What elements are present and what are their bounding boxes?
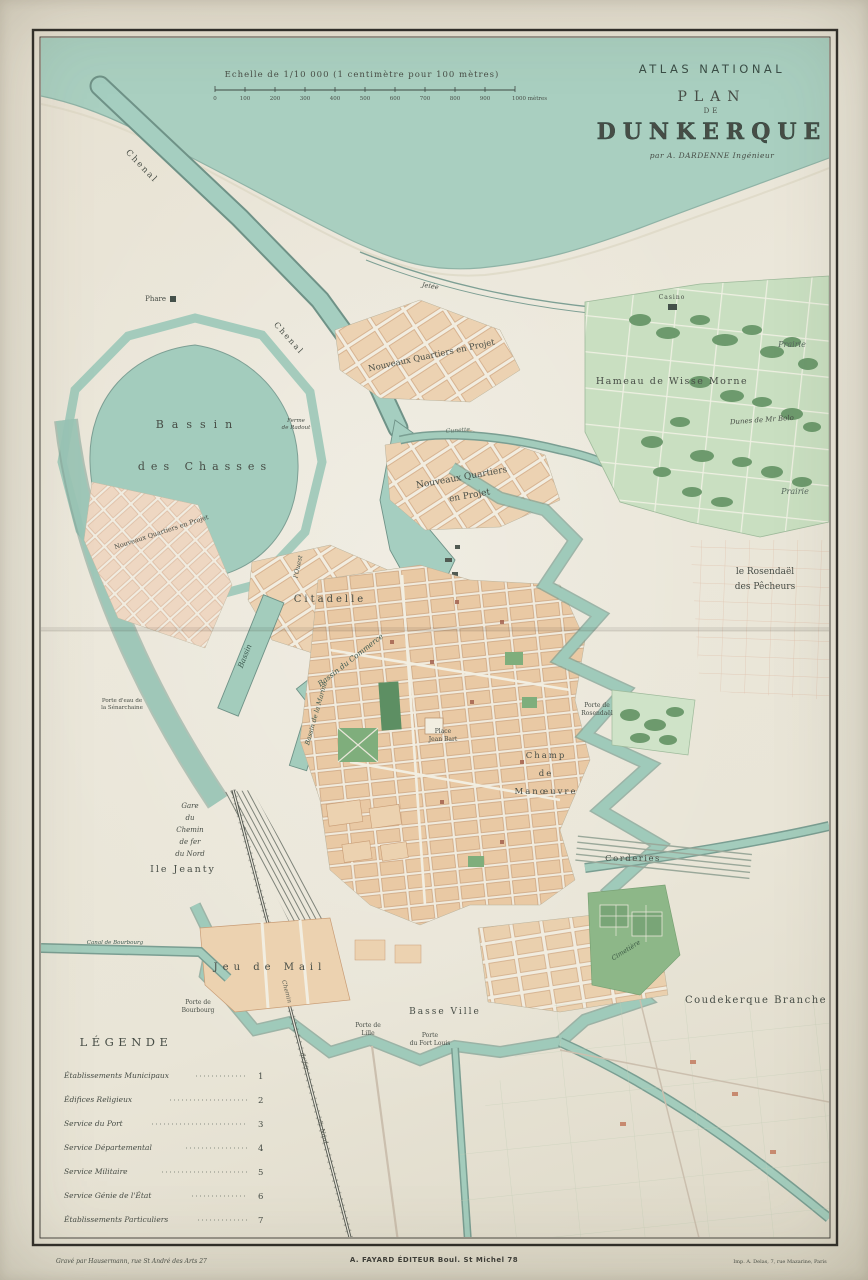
label-prairie-2: Prairie <box>780 487 809 496</box>
label-gare-3: Chemin <box>176 826 204 834</box>
city-title: DUNKERQUE <box>597 119 828 145</box>
label-rail-3: du Nord <box>316 1119 329 1145</box>
label-canal-bourbourg: Canal de Bourbourg <box>87 940 144 946</box>
imprint-right: Imp. A. Delas, 7, rue Mazarine, Paris <box>733 1259 827 1265</box>
label-bassin-chasses-2: des Chasses <box>138 460 272 473</box>
label-gare-5: du Nord <box>175 850 205 858</box>
svg-text:600: 600 <box>390 96 401 102</box>
label-rosendael-2: des Pêcheurs <box>735 581 796 592</box>
imprint-left: Gravé par Hausermann, rue St André des A… <box>56 1258 207 1265</box>
label-chenal-a: Chenal <box>123 148 160 185</box>
legend: LÉGENDE Établissements Municipaux Édific… <box>63 1035 263 1226</box>
legend-item-label: Service Départemental <box>64 1143 152 1152</box>
label-bassin-chasses-1: Bassin <box>156 418 241 431</box>
svg-text:800: 800 <box>450 96 461 102</box>
svg-text:300: 300 <box>300 96 311 102</box>
svg-text:0: 0 <box>213 96 217 102</box>
sw-small-blocks <box>355 940 421 963</box>
svg-text:700: 700 <box>420 96 431 102</box>
road-lille <box>372 1046 398 1242</box>
lighthouse <box>170 296 176 302</box>
dunes-park <box>585 276 829 537</box>
label-phare: Phare <box>145 295 166 303</box>
svg-text:400: 400 <box>330 96 341 102</box>
label-champ-3: Manœuvre <box>514 787 577 797</box>
label-rail-2: de fer <box>299 1052 311 1072</box>
legend-item-label: Édifices Religieux <box>63 1095 133 1104</box>
label-basse-ville: Basse Ville <box>409 1007 481 1017</box>
svg-text:200: 200 <box>270 96 281 102</box>
legend-item-label: Établissements Municipaux <box>63 1071 170 1080</box>
legend-item-label: Service du Port <box>64 1119 124 1128</box>
legend-item-num: 7 <box>258 1216 263 1226</box>
label-rosendael-1: le Rosendaël <box>736 567 794 577</box>
label-place-2: Jean Bart <box>428 736 458 743</box>
rosendael-grid <box>690 540 829 700</box>
label-porte-ros-1: Porte de <box>584 702 610 709</box>
legend-item-num: 2 <box>258 1096 263 1106</box>
de-word: DE <box>704 107 721 115</box>
legend-item-label: Service Génie de l'État <box>64 1191 152 1200</box>
label-citadelle: Citadelle <box>294 594 366 605</box>
legend-title: LÉGENDE <box>80 1035 173 1049</box>
legend-item-label: Établissements Particuliers <box>63 1215 168 1224</box>
svg-text:500: 500 <box>360 96 371 102</box>
scale-caption: Echelle de 1/10 000 (1 centimètre pour 1… <box>225 69 500 80</box>
label-porte-fl-2: du Fort Louis <box>410 1040 451 1047</box>
label-porte-bourbourg-1: Porte de <box>185 999 211 1006</box>
label-porte-fl-1: Porte <box>422 1032 439 1039</box>
legend-item-num: 5 <box>258 1168 263 1178</box>
label-place-1: Place <box>435 728 452 735</box>
label-gare-1: Gare <box>181 802 198 810</box>
label-porte-lille-2: Lille <box>361 1030 375 1037</box>
legend-item-label: Service Militaire <box>64 1167 128 1176</box>
svg-text:900: 900 <box>480 96 491 102</box>
svg-text:1000 mètres: 1000 mètres <box>512 95 547 102</box>
label-prairie-1: Prairie <box>777 340 806 349</box>
label-champ-1: Champ <box>526 751 567 761</box>
label-champ-2: de <box>539 769 553 779</box>
map-canvas: Echelle de 1/10 000 (1 centimètre pour 1… <box>0 0 868 1280</box>
legend-item-num: 4 <box>258 1144 263 1154</box>
label-coudekerque: Coudekerque Branche <box>685 995 827 1006</box>
label-jetee: Jetée <box>419 280 439 291</box>
map-photo: Echelle de 1/10 000 (1 centimètre pour 1… <box>0 0 868 1280</box>
legend-item-num: 6 <box>258 1192 263 1202</box>
author-line: par A. DARDENNE Ingénieur <box>650 151 775 160</box>
label-corderies: Corderies <box>605 854 661 864</box>
label-porte-eau-2: la Sénarchaine <box>101 704 143 711</box>
fold-crease <box>33 627 837 631</box>
legend-item-num: 1 <box>258 1072 263 1082</box>
legend-leaders <box>152 1076 248 1220</box>
label-porte-eau-1: Porte d'eau de <box>102 698 142 704</box>
label-ile-jeanty: Ile Jeanty <box>150 864 216 875</box>
label-porte-bourbourg-2: Bourbourg <box>182 1007 215 1014</box>
imprint-center: A. FAYARD ÉDITEUR Boul. St Michel 78 <box>350 1255 518 1264</box>
casino-building <box>668 304 677 310</box>
label-porte-ros-2: Rosendaël <box>581 710 613 717</box>
series-title: ATLAS NATIONAL <box>639 62 785 76</box>
station-tracks <box>225 790 330 940</box>
plan-word: PLAN <box>677 89 746 105</box>
svg-text:100: 100 <box>240 96 251 102</box>
legend-item-num: 3 <box>258 1120 263 1130</box>
label-casino: Casino <box>659 294 686 301</box>
label-gare-4: de fer <box>180 838 202 846</box>
fields <box>460 1000 829 1242</box>
label-jeu-de-mail: Jeu de Mail <box>213 962 327 973</box>
label-porte-lille-1: Porte de <box>355 1022 381 1029</box>
label-hameau: Hameau de Wisse Morne <box>596 376 748 387</box>
label-ferme-2: de Radout <box>282 425 311 431</box>
label-gare-2: du <box>186 814 195 822</box>
bassin-ouest-shape <box>218 595 284 716</box>
label-ferme-1: Ferme <box>286 418 306 424</box>
